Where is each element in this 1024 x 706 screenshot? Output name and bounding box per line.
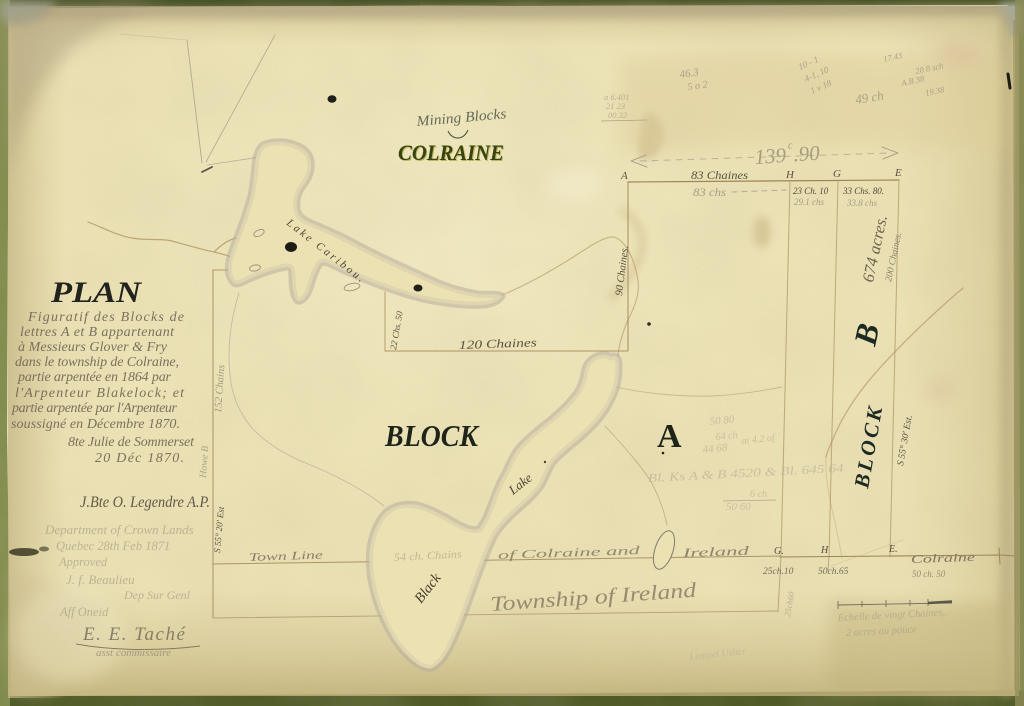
svg-text:83 chs: 83 chs — [693, 185, 726, 199]
svg-text:Aff Oneid: Aff Oneid — [59, 605, 109, 619]
svg-text:Quebec 28th Feb 1871: Quebec 28th Feb 1871 — [56, 539, 170, 553]
svg-text:83 Chaines: 83 Chaines — [691, 168, 748, 182]
svg-text:soussigné en Décembre 1870.: soussigné en Décembre 1870. — [11, 417, 180, 432]
svg-text:PLAN: PLAN — [50, 276, 143, 309]
svg-text:50 60: 50 60 — [726, 501, 751, 513]
svg-text:H: H — [820, 545, 829, 556]
svg-text:50 ch. 50: 50 ch. 50 — [912, 569, 946, 579]
svg-text:G: G — [833, 168, 841, 180]
svg-text:29.1 chs: 29.1 chs — [794, 197, 824, 207]
svg-text:lettres A et B appartenant: lettres A et B appartenant — [20, 325, 175, 340]
svg-text:Dep Sur Genl: Dep Sur Genl — [123, 588, 191, 602]
svg-text:8te Julie de Sommerset: 8te Julie de Sommerset — [68, 435, 195, 450]
svg-text:J.Bte O. Legendre A.P.: J.Bte O. Legendre A.P. — [80, 494, 210, 511]
svg-text:139: 139 — [754, 143, 788, 169]
svg-text:23 Ch. 10: 23 Ch. 10 — [793, 186, 829, 196]
svg-text:E: E — [894, 167, 902, 179]
svg-text:Colraine: Colraine — [911, 552, 975, 566]
svg-text:Approved: Approved — [58, 555, 108, 569]
svg-text:BLOCK: BLOCK — [384, 418, 480, 453]
svg-text:E. E. Taché: E. E. Taché — [82, 624, 186, 645]
svg-text:COLRAINE: COLRAINE — [398, 140, 504, 165]
svg-text:33.8 chs: 33.8 chs — [846, 198, 877, 208]
svg-text:25ch.10: 25ch.10 — [763, 567, 794, 577]
svg-text:asst commissaire: asst commissaire — [96, 647, 171, 659]
svg-text:G.: G. — [774, 546, 784, 557]
svg-text:partie arpentée par l'Arpenteu: partie arpentée par l'Arpenteur — [11, 401, 178, 416]
svg-text:l'Arpenteur Blakelock; et: l'Arpenteur Blakelock; et — [15, 386, 185, 401]
svg-text:A: A — [657, 418, 682, 455]
svg-text:64 ch: 64 ch — [715, 430, 738, 443]
svg-text:H: H — [785, 169, 795, 181]
svg-text:Ireland: Ireland — [681, 544, 751, 560]
svg-text:Figuratif des Blocks de: Figuratif des Blocks de — [27, 310, 184, 325]
svg-text:Howe B: Howe B — [198, 446, 211, 480]
svg-text:50ch.65: 50ch.65 — [818, 567, 849, 577]
svg-text:00.32: 00.32 — [608, 110, 628, 120]
svg-text:6 ch: 6 ch — [750, 489, 767, 500]
svg-text:A: A — [620, 170, 628, 182]
svg-text:J. f. Beaulieu: J. f. Beaulieu — [66, 572, 135, 587]
svg-text:20 Déc 1870.: 20 Déc 1870. — [95, 451, 184, 466]
svg-text:à Messieurs Glover & Fry: à Messieurs Glover & Fry — [18, 340, 168, 355]
svg-text:.90: .90 — [793, 141, 821, 167]
svg-text:E.: E. — [888, 544, 898, 555]
svg-text:33 Chs. 80.: 33 Chs. 80. — [842, 186, 884, 196]
svg-text:120 Chaines: 120 Chaines — [459, 335, 538, 352]
svg-text:Department of Crown Lands: Department of Crown Lands — [44, 522, 194, 537]
svg-text:dans le township de Colraine,: dans le township de Colraine, — [15, 355, 179, 370]
svg-text:partie arpentée en 1864 par: partie arpentée en 1864 par — [17, 370, 172, 385]
